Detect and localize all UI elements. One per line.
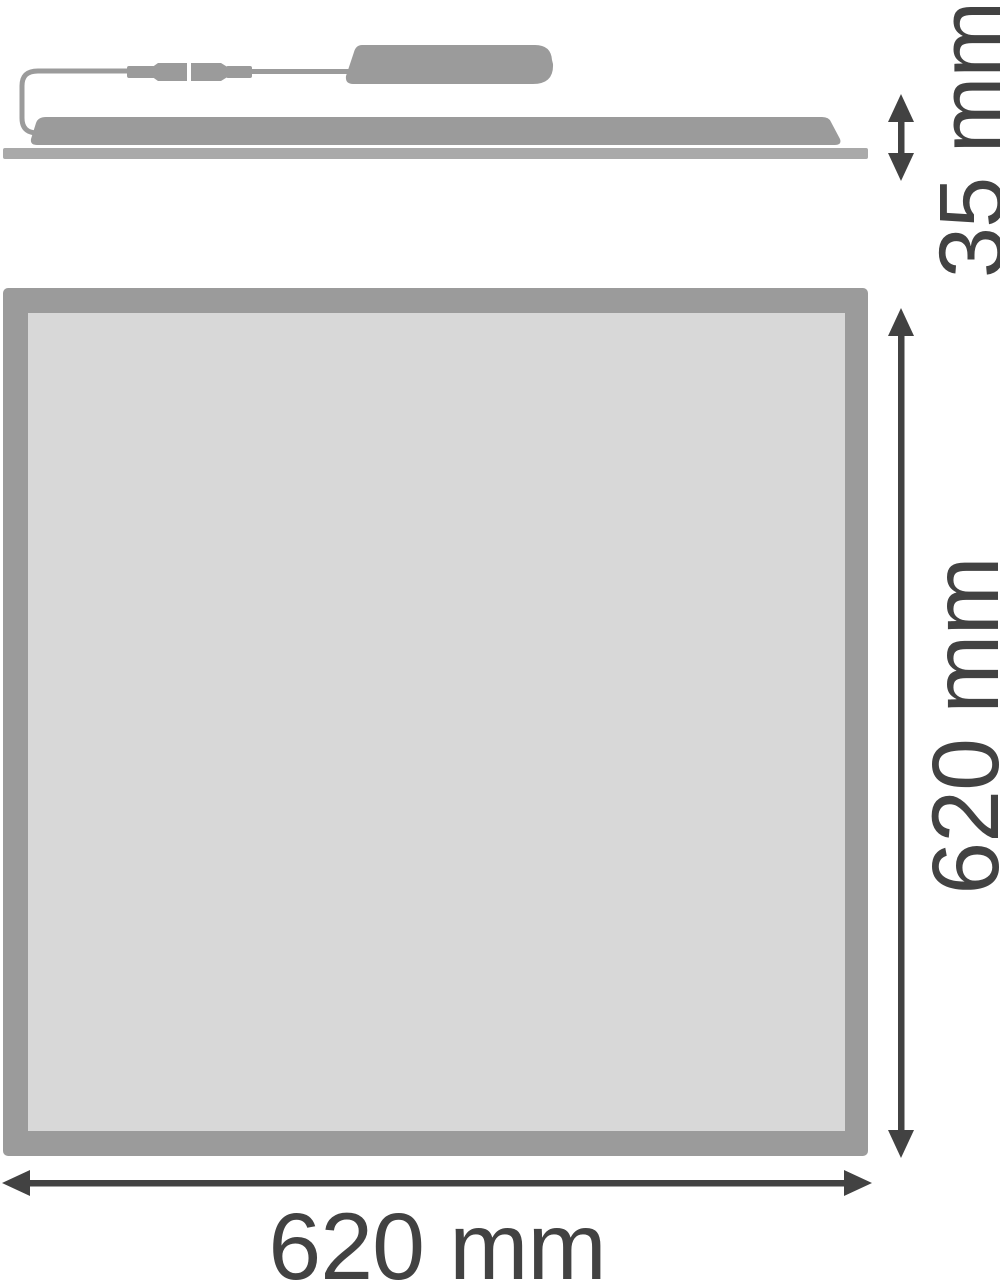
cable-to-driver: [250, 69, 351, 74]
depth-arrow-head-up: [888, 94, 914, 122]
height-arrow-head-down: [888, 1130, 914, 1158]
width-arrow-head-left: [2, 1170, 30, 1196]
depth-dimension-arrow: [888, 94, 914, 181]
connector-right-plug: [191, 63, 229, 81]
height-dimension-label: 620 mm: [906, 526, 1000, 926]
width-dimension-label: 620 mm: [237, 1200, 637, 1284]
width-arrow-head-right: [844, 1170, 872, 1196]
connector-left-plug: [151, 63, 187, 81]
height-arrow-line: [898, 332, 905, 1132]
drawing-layer: [0, 0, 1000, 1284]
panel-front-face: [28, 313, 845, 1131]
depth-arrow-head-down: [888, 153, 914, 181]
width-dimension-arrow: [2, 1170, 872, 1196]
width-arrow-line: [28, 1180, 846, 1187]
driver-box: [346, 45, 553, 84]
panel-side-body: [31, 117, 841, 145]
connector-left-neck: [127, 66, 155, 78]
connector-right-neck: [226, 66, 252, 78]
dimension-drawing-canvas: 35 mm 620 mm 620 mm: [0, 0, 1000, 1284]
side-view-structure-group: [31, 45, 841, 145]
panel-side-baseplate: [3, 148, 868, 159]
height-arrow-head-up: [888, 308, 914, 336]
depth-dimension-label: 35 mm: [912, 0, 1000, 340]
